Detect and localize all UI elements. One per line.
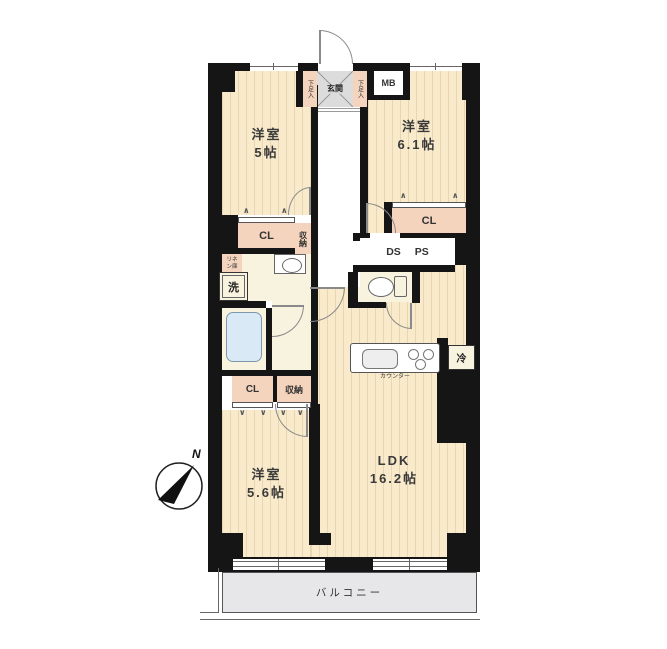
room-label-west-top-left: 洋室 5帖: [222, 126, 311, 162]
sliding-door: [392, 202, 466, 208]
balcony-label: バルコニー: [316, 585, 383, 600]
meter-box: MB: [374, 71, 403, 95]
wall: [353, 63, 410, 71]
meter-box-label: MB: [382, 78, 396, 88]
washing-machine: 洗: [219, 272, 248, 301]
wall-kitchen-block: [437, 368, 466, 443]
room-size: 16.2帖: [370, 470, 418, 488]
room-door-leaf: [309, 187, 311, 215]
basin-bowl: [282, 258, 302, 273]
shoe-cabinet-right: 下足入: [353, 71, 367, 107]
linen-label-line2: ン庫: [226, 264, 237, 270]
duct-space-label: DS: [386, 246, 401, 258]
entrance-step-line: [318, 111, 360, 112]
wall: [353, 265, 455, 272]
door-swing-mark: ∧: [243, 207, 250, 215]
closet-label: CL: [259, 230, 274, 242]
compass: N: [148, 442, 212, 514]
room-name: LDK: [378, 452, 411, 470]
wall-right: [466, 100, 480, 572]
balcony-outline: [218, 568, 219, 613]
pipe-space-label: PS: [415, 246, 429, 258]
toilet-door-leaf: [410, 303, 412, 329]
bathroom-door-leaf: [272, 305, 304, 307]
entrance-text: 玄関: [326, 84, 344, 95]
kitchen-counter: [350, 343, 440, 373]
door-swing-mark: ∧: [452, 192, 459, 200]
door-swing-mark: ∨: [260, 409, 267, 417]
storage-label: 収納: [298, 231, 309, 247]
storage-upper: 収納: [295, 223, 311, 254]
room-size: 6.1帖: [397, 136, 436, 154]
kitchen-counter-label: カウンター: [350, 373, 440, 381]
room-size: 5帖: [254, 144, 278, 162]
toilet-bowl: [368, 277, 394, 297]
wash-basin: [274, 254, 306, 274]
room-name: 洋室: [251, 466, 281, 484]
door-swing-mark: ∨: [239, 409, 246, 417]
wall: [222, 215, 238, 223]
room-label-ldk: LDK 16.2帖: [330, 452, 458, 488]
duct-pipe-space: DS PS: [360, 238, 455, 265]
room-name: 洋室: [251, 126, 281, 144]
floor-plan: 下足入 下足入 CL 収納 CL CL 収納 リネ ン庫 ∧ ∧ ∧ ∧ ∨ ∨…: [0, 0, 667, 649]
closet-top-right: CL: [392, 208, 466, 233]
room-label-west-top-right: 洋室 6.1帖: [368, 118, 466, 154]
closet-label: CL: [422, 215, 437, 227]
entrance-label: 玄関: [317, 71, 353, 107]
balcony-window: [233, 559, 325, 570]
window: [410, 63, 462, 71]
compass-north-label: N: [192, 447, 201, 461]
shoe-cabinet-left: 下足入: [303, 71, 317, 107]
toilet-tank: [394, 276, 407, 297]
counter-text: カウンター: [380, 373, 410, 381]
balcony-window: [373, 559, 447, 570]
room-size: 5.6帖: [247, 484, 286, 502]
window: [250, 63, 298, 71]
ldk-door-leaf: [310, 287, 345, 289]
stove-burner: [415, 359, 426, 370]
wall-end-cap: [309, 533, 331, 545]
wall: [348, 302, 386, 308]
corridor-floor: [318, 107, 360, 287]
balcony: バルコニー: [222, 572, 477, 613]
room-name: 洋室: [402, 118, 432, 136]
wall: [296, 71, 303, 107]
room-door-leaf: [306, 404, 308, 437]
stove-burner: [423, 349, 434, 360]
shoe-cabinet-label: 下足入: [356, 80, 365, 98]
storage-label: 収納: [285, 383, 303, 396]
entrance-door-leaf: [319, 30, 321, 64]
wall: [403, 63, 410, 71]
door-swing-mark: ∧: [281, 207, 288, 215]
closet-bottom: CL: [232, 376, 273, 402]
shoe-cabinet-label: 下足入: [306, 80, 315, 98]
entrance-step-line: [318, 108, 360, 109]
door-swing-mark: ∧: [400, 192, 407, 200]
refrigerator-label: 冷: [457, 350, 467, 365]
wall: [455, 238, 466, 265]
sliding-door: [238, 217, 295, 223]
stove-burner: [408, 349, 419, 360]
building-outline: [200, 619, 480, 620]
wall: [348, 272, 358, 303]
entrance-door-arc: [319, 30, 353, 64]
room-door-leaf: [366, 203, 368, 233]
wall: [298, 63, 318, 71]
closet-label: CL: [246, 384, 259, 395]
linen-cabinet: リネ ン庫: [222, 254, 242, 273]
closet-top-left: CL: [238, 223, 295, 248]
kitchen-sink: [362, 349, 398, 369]
wall: [412, 272, 420, 303]
storage-lower: 収納: [277, 376, 311, 402]
wall-pillar: [462, 63, 480, 100]
balcony-outline: [200, 612, 219, 613]
washing-machine-label: 洗: [228, 279, 239, 295]
refrigerator: 冷: [448, 345, 475, 370]
room-label-west-bottom: 洋室 5.6帖: [222, 466, 311, 502]
wall: [218, 301, 266, 308]
bathtub: [226, 312, 262, 362]
